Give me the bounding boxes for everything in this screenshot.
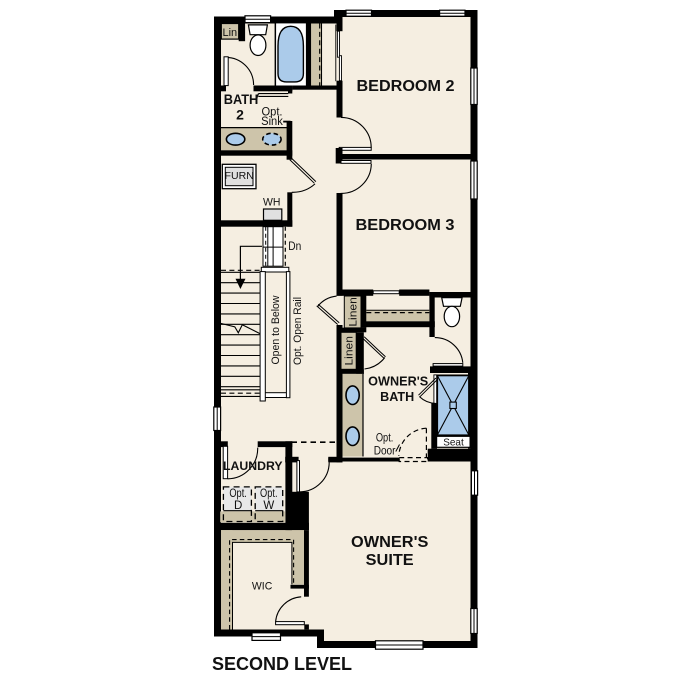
svg-text:D: D (234, 500, 242, 512)
svg-text:Door: Door (374, 445, 396, 457)
svg-text:LAUNDRY: LAUNDRY (223, 459, 283, 473)
svg-text:WIC: WIC (252, 581, 272, 593)
svg-text:W: W (263, 500, 274, 512)
svg-text:Linen: Linen (343, 336, 355, 366)
svg-text:Open to Below: Open to Below (270, 295, 282, 364)
svg-text:OWNER'S: OWNER'S (368, 375, 428, 389)
svg-text:SECOND LEVEL: SECOND LEVEL (212, 654, 352, 674)
svg-text:Opt. Open Rail: Opt. Open Rail (292, 297, 304, 365)
svg-text:BATH: BATH (380, 390, 414, 404)
svg-text:Lin: Lin (222, 27, 237, 39)
svg-text:BEDROOM 2: BEDROOM 2 (357, 78, 455, 95)
svg-text:FURN: FURN (225, 170, 254, 182)
svg-text:Opt.: Opt. (260, 488, 278, 500)
svg-text:BEDROOM 3: BEDROOM 3 (356, 217, 455, 234)
svg-text:Seat: Seat (443, 436, 464, 448)
svg-text:2: 2 (236, 107, 244, 123)
svg-text:OWNER'S: OWNER'S (351, 534, 428, 551)
svg-text:WH: WH (263, 197, 280, 209)
svg-text:Linen: Linen (348, 297, 360, 327)
svg-text:SUITE: SUITE (366, 552, 414, 569)
svg-text:Opt.: Opt. (376, 432, 394, 444)
svg-text:Opt.: Opt. (229, 488, 247, 500)
svg-text:BATH: BATH (224, 91, 259, 107)
svg-text:Dn: Dn (288, 241, 301, 253)
svg-text:Sink: Sink (261, 116, 283, 128)
